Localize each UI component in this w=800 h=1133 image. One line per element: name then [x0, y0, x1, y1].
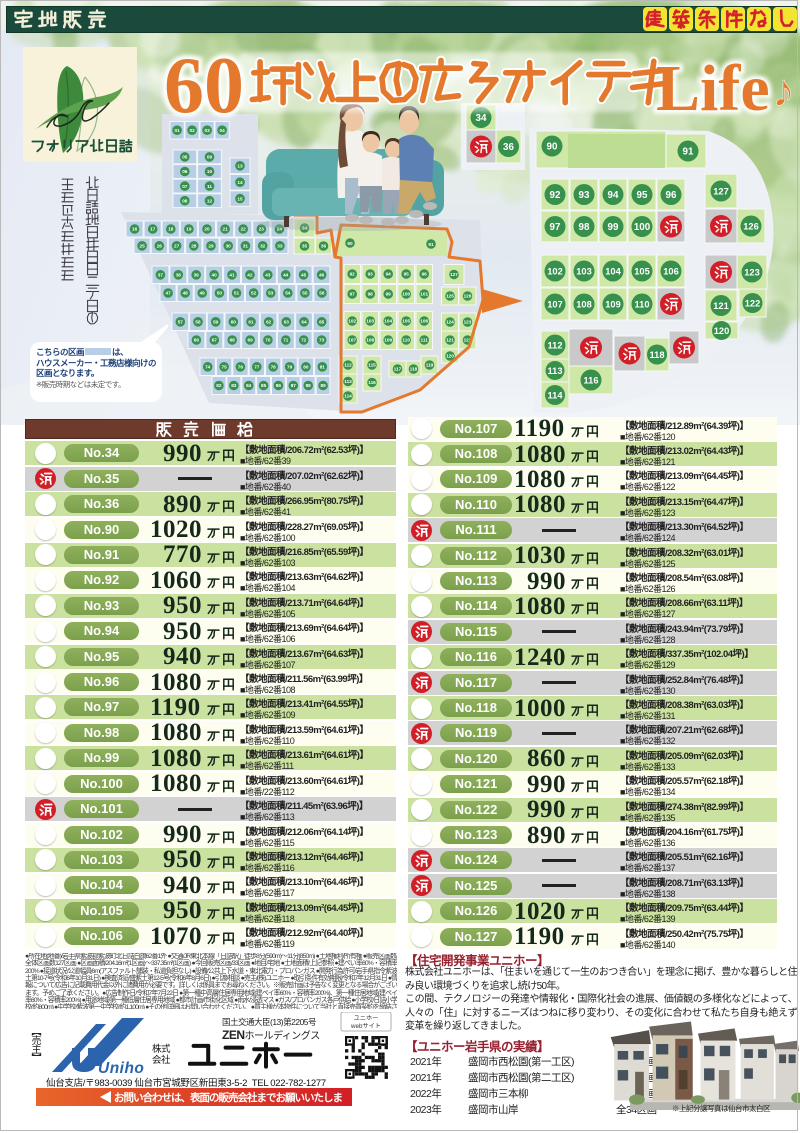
svg-text:16: 16	[132, 227, 138, 232]
svg-text:112: 112	[548, 340, 563, 350]
svg-text:105: 105	[634, 266, 650, 276]
svg-text:42: 42	[247, 272, 253, 277]
svg-text:09: 09	[207, 155, 213, 160]
svg-text:05: 05	[182, 155, 188, 160]
svg-text:25: 25	[139, 243, 145, 248]
svg-text:105: 105	[402, 319, 410, 324]
svg-text:44: 44	[283, 272, 289, 277]
svg-text:94: 94	[608, 190, 619, 201]
svg-text:39: 39	[194, 272, 200, 277]
svg-text:17: 17	[150, 227, 156, 232]
svg-text:64: 64	[301, 319, 307, 324]
svg-text:100: 100	[402, 292, 410, 297]
svg-text:01: 01	[174, 128, 180, 133]
svg-text:90: 90	[547, 142, 558, 153]
svg-text:113: 113	[344, 379, 352, 384]
svg-text:74: 74	[205, 364, 211, 369]
svg-text:62: 62	[266, 319, 272, 324]
svg-text:35: 35	[302, 244, 308, 249]
svg-text:54: 54	[285, 291, 291, 296]
svg-text:126: 126	[743, 221, 759, 231]
svg-text:114: 114	[344, 394, 352, 399]
svg-text:36: 36	[321, 244, 327, 249]
svg-text:67: 67	[212, 338, 218, 343]
svg-text:118: 118	[410, 367, 418, 372]
svg-text:108: 108	[576, 299, 592, 309]
svg-text:28: 28	[191, 243, 197, 248]
svg-text:76: 76	[238, 364, 244, 369]
svg-text:103: 103	[366, 319, 374, 324]
svg-text:30: 30	[226, 243, 232, 248]
svg-text:60: 60	[164, 44, 244, 122]
svg-text:03: 03	[204, 128, 210, 133]
svg-text:49: 49	[200, 291, 206, 296]
svg-text:57: 57	[178, 319, 184, 324]
svg-text:115: 115	[368, 363, 376, 368]
svg-text:118: 118	[650, 350, 665, 360]
svg-text:22: 22	[241, 227, 247, 232]
svg-text:♪: ♪	[772, 64, 795, 116]
svg-text:47: 47	[165, 291, 171, 296]
svg-text:123: 123	[464, 320, 472, 325]
svg-text:29: 29	[208, 243, 214, 248]
svg-text:61: 61	[248, 319, 254, 324]
svg-text:78: 78	[271, 364, 277, 369]
svg-text:123: 123	[744, 267, 760, 277]
svg-text:63: 63	[284, 319, 290, 324]
svg-text:104: 104	[384, 319, 392, 324]
svg-text:10: 10	[207, 169, 213, 174]
svg-text:04: 04	[219, 128, 225, 133]
svg-text:109: 109	[605, 299, 621, 309]
svg-text:102: 102	[348, 319, 356, 324]
svg-text:20: 20	[204, 227, 210, 232]
svg-text:59: 59	[213, 319, 219, 324]
svg-text:60: 60	[231, 319, 237, 324]
svg-text:43: 43	[265, 272, 271, 277]
svg-text:111: 111	[421, 338, 429, 343]
svg-text:102: 102	[547, 266, 563, 276]
svg-text:97: 97	[550, 222, 561, 233]
svg-text:webサイト: webサイト	[350, 1023, 381, 1030]
svg-text:109: 109	[384, 338, 392, 343]
svg-text:117: 117	[394, 367, 402, 372]
svg-text:66: 66	[194, 338, 200, 343]
svg-text:07: 07	[182, 184, 188, 189]
svg-text:26: 26	[157, 243, 163, 248]
svg-text:119: 119	[426, 363, 434, 368]
svg-text:110: 110	[635, 299, 650, 309]
svg-text:98: 98	[368, 292, 374, 297]
svg-text:73: 73	[319, 338, 325, 343]
svg-text:116: 116	[584, 375, 599, 385]
svg-text:122: 122	[745, 298, 761, 308]
svg-text:116: 116	[368, 380, 376, 385]
svg-text:41: 41	[229, 272, 235, 277]
svg-text:97: 97	[350, 292, 356, 297]
svg-text:92: 92	[350, 272, 356, 277]
svg-text:88: 88	[306, 383, 312, 388]
svg-text:120: 120	[446, 354, 454, 359]
svg-text:36: 36	[503, 142, 514, 153]
svg-text:93: 93	[579, 190, 590, 201]
svg-text:90: 90	[347, 241, 353, 246]
svg-text:55: 55	[302, 291, 308, 296]
svg-text:101: 101	[420, 292, 428, 297]
svg-text:51: 51	[234, 291, 240, 296]
svg-text:08: 08	[182, 198, 188, 203]
svg-text:81: 81	[320, 364, 326, 369]
svg-text:96: 96	[422, 272, 428, 277]
svg-text:95: 95	[404, 272, 410, 277]
svg-text:96: 96	[666, 190, 677, 201]
svg-text:15: 15	[237, 196, 243, 201]
svg-text:110: 110	[402, 338, 410, 343]
svg-text:21: 21	[222, 227, 228, 232]
svg-text:Life: Life	[656, 52, 770, 122]
svg-text:91: 91	[428, 242, 434, 247]
svg-text:75: 75	[221, 364, 227, 369]
svg-text:121: 121	[713, 301, 729, 311]
svg-text:11: 11	[207, 184, 212, 189]
svg-text:31: 31	[243, 243, 249, 248]
svg-text:120: 120	[714, 326, 730, 336]
svg-text:114: 114	[548, 390, 564, 400]
svg-text:46: 46	[319, 272, 325, 277]
svg-text:127: 127	[713, 186, 729, 196]
svg-text:18: 18	[168, 227, 174, 232]
svg-text:19: 19	[186, 227, 192, 232]
svg-text:58: 58	[195, 319, 201, 324]
svg-text:65: 65	[319, 319, 325, 324]
svg-text:53: 53	[268, 291, 274, 296]
svg-text:83: 83	[231, 383, 237, 388]
svg-text:84: 84	[246, 383, 252, 388]
svg-text:107: 107	[547, 299, 563, 309]
svg-text:107: 107	[348, 338, 356, 343]
svg-text:40: 40	[211, 272, 217, 277]
svg-text:91: 91	[683, 147, 694, 158]
svg-text:82: 82	[216, 383, 222, 388]
svg-text:02: 02	[189, 128, 195, 133]
svg-text:106: 106	[663, 266, 679, 276]
svg-text:23: 23	[259, 227, 265, 232]
svg-text:32: 32	[260, 243, 266, 248]
svg-text:68: 68	[230, 338, 236, 343]
svg-text:108: 108	[366, 338, 374, 343]
svg-text:89: 89	[320, 383, 326, 388]
svg-text:121: 121	[446, 338, 454, 343]
svg-text:56: 56	[319, 291, 325, 296]
svg-text:37: 37	[158, 272, 164, 277]
svg-text:99: 99	[608, 222, 619, 233]
svg-text:100: 100	[634, 222, 651, 233]
svg-text:71: 71	[283, 338, 289, 343]
svg-text:14: 14	[237, 180, 243, 185]
svg-text:95: 95	[637, 190, 648, 201]
svg-text:13: 13	[237, 164, 243, 169]
svg-text:50: 50	[217, 291, 223, 296]
svg-text:104: 104	[605, 266, 621, 276]
svg-text:94: 94	[386, 272, 392, 277]
svg-text:127: 127	[450, 272, 458, 277]
svg-text:72: 72	[301, 338, 307, 343]
svg-text:38: 38	[176, 272, 182, 277]
svg-text:80: 80	[303, 364, 309, 369]
svg-text:98: 98	[579, 222, 590, 233]
svg-text:70: 70	[265, 338, 271, 343]
svg-text:06: 06	[182, 169, 188, 174]
svg-text:125: 125	[446, 294, 454, 299]
svg-text:85: 85	[261, 383, 267, 388]
svg-text:12: 12	[207, 198, 213, 203]
svg-text:77: 77	[254, 364, 260, 369]
svg-text:124: 124	[446, 320, 454, 325]
svg-text:92: 92	[550, 190, 561, 201]
svg-text:69: 69	[247, 338, 253, 343]
svg-text:79: 79	[287, 364, 293, 369]
svg-text:112: 112	[344, 363, 352, 368]
svg-text:48: 48	[183, 291, 189, 296]
svg-text:99: 99	[386, 292, 392, 297]
svg-text:52: 52	[251, 291, 257, 296]
svg-text:93: 93	[368, 272, 374, 277]
svg-text:33: 33	[277, 243, 283, 248]
svg-text:27: 27	[174, 243, 180, 248]
svg-text:126: 126	[464, 294, 472, 299]
svg-text:113: 113	[548, 366, 563, 376]
svg-text:86: 86	[276, 383, 282, 388]
svg-text:103: 103	[576, 266, 592, 276]
svg-text:106: 106	[420, 319, 428, 324]
svg-text:ユニホー: ユニホー	[354, 1015, 379, 1022]
svg-text:45: 45	[301, 272, 307, 277]
svg-text:87: 87	[291, 383, 297, 388]
